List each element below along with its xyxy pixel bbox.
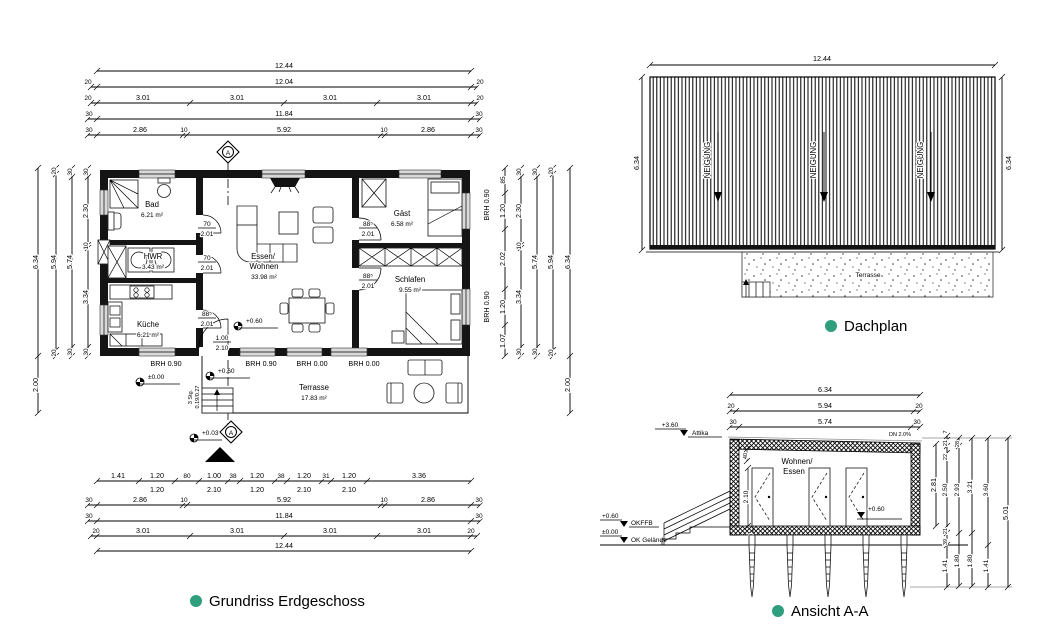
- dim-label: 3.01: [136, 93, 150, 102]
- stove-icon: [270, 178, 300, 193]
- plan-right-dimensions: 85 1.20 2.02 1.20 1.07 BRH 0.90 BRH 0.90…: [482, 165, 573, 416]
- brh-label: BRH 0.00: [348, 359, 379, 368]
- dim-label: 2.10: [297, 485, 311, 494]
- dim-label: 1.20: [150, 485, 164, 494]
- dim-label: 3.01: [230, 93, 244, 102]
- under-floor-supports: [749, 535, 907, 545]
- section-doors: [752, 468, 867, 526]
- dim-label: 20: [727, 403, 735, 410]
- roof-plan-drawing: 12.44 6.34 6.34 NEIGUNG NEIGUNG NEIGUNG …: [632, 54, 1013, 297]
- dim-label: 10: [380, 127, 388, 134]
- slope-label: NEIGUNG: [916, 142, 925, 178]
- door-w: 88⁵: [363, 221, 373, 228]
- plan-bottom-dimensions: 1.41 1.20 80 1.00 38 1.20 38 1.20 31 1.2…: [85, 471, 483, 554]
- dim-label: 1.20: [250, 485, 264, 494]
- dim-label: 2.86: [421, 495, 435, 504]
- stairs-note: 3 Stg.: [188, 389, 194, 404]
- shelf-icon: [108, 246, 126, 278]
- section-marker-icon: A: [220, 421, 242, 443]
- dim-label: 38: [229, 473, 237, 480]
- door-w: 1.00: [216, 335, 229, 342]
- level-label: +0.60: [602, 513, 619, 520]
- dim-label: 20: [476, 79, 484, 86]
- section-marker-icon: A: [217, 141, 239, 163]
- door-h: 2.01: [362, 231, 375, 238]
- dim-label: 1.20: [297, 471, 311, 480]
- sink-icon: [158, 178, 171, 198]
- room-name: Essen/: [251, 252, 276, 261]
- section-stairs: [662, 491, 730, 545]
- section-line-markers: A A: [205, 141, 242, 462]
- dim-label: 5.94: [49, 255, 58, 269]
- dim-label: 3.34: [81, 290, 90, 304]
- door-h: 2.01: [201, 231, 214, 238]
- shower-icon: [110, 180, 138, 208]
- dim-label: 12.44: [813, 54, 831, 63]
- door-h: 2.10: [216, 345, 229, 352]
- dim-label: 3.60: [983, 483, 990, 496]
- dim-label: 3.34: [514, 290, 523, 304]
- room-name: Terrasse: [299, 383, 329, 392]
- level-label: OKFFB: [631, 520, 653, 527]
- brh-label: BRH 0.90: [482, 291, 491, 322]
- door-h: 2.01: [201, 321, 214, 328]
- dim-label: 5.74: [818, 417, 832, 426]
- plan-furniture: [108, 178, 462, 346]
- level-label: +0.60: [218, 368, 235, 375]
- dim-label: 28: [955, 441, 961, 447]
- door-w: 70: [203, 221, 211, 228]
- section-marker-letter: A: [229, 430, 234, 437]
- ground-screw-piles: [749, 545, 907, 597]
- floor-slab: [730, 526, 920, 535]
- brh-label: BRH 0.90: [150, 359, 181, 368]
- dim-label: 1.41: [983, 559, 990, 572]
- dim-label: 12.44: [275, 541, 293, 550]
- terrace-label: Terrasse: [856, 272, 881, 279]
- dim-label: 30: [516, 348, 523, 356]
- level-label: ±0.00: [602, 529, 619, 536]
- dim-label: 5.74: [530, 255, 539, 269]
- dim-label: 5.92: [277, 125, 291, 134]
- dim-label: 1.07: [498, 334, 507, 348]
- section-right-dimensions: 2.81 7 21 22 2.50 21 39 1.41 28 2.93 1.8…: [910, 430, 1012, 590]
- room-area: 17.83 m²: [301, 395, 327, 402]
- dim-label: 30: [516, 168, 523, 176]
- legend-dot: [772, 605, 784, 617]
- room-name: Essen: [783, 467, 805, 476]
- dim-label: 3.01: [323, 93, 337, 102]
- legend-dot: [190, 595, 202, 607]
- floor-plan-drawing: 12.44 20 12.04 20 20 3.01 3.01 3.01 3.01…: [31, 61, 573, 554]
- dim-label: 21: [943, 528, 949, 534]
- dim-label: 7: [943, 430, 949, 433]
- dim-label: 30: [475, 513, 483, 520]
- dim-label: 80: [183, 473, 191, 480]
- dim-label: 2.86: [133, 495, 147, 504]
- room-area: 3.43 m²: [142, 264, 165, 271]
- section-drawing: 6.34 20 5.94 20 30 5.74 30 DN 2.0% Wohne…: [600, 385, 1012, 597]
- level-label: +0.03: [202, 430, 219, 437]
- door-w: 88⁵: [202, 311, 212, 318]
- drawing-title: Grundriss Erdgeschoss: [209, 593, 365, 610]
- dim-label: 5.94: [546, 255, 555, 269]
- dim-label: 39: [943, 539, 949, 545]
- dim-label: 3.01: [323, 526, 337, 535]
- level-mark-icon: [136, 378, 144, 386]
- dim-label: 20: [92, 528, 100, 535]
- dim-label: 20: [467, 528, 475, 535]
- exterior-stairs: 3 Stg. 0.19/0.27: [188, 386, 233, 413]
- dim-label: 2.30: [81, 204, 90, 218]
- dim-label: 30: [85, 111, 93, 118]
- dim-label: 1.00: [207, 471, 221, 480]
- dim-label: 2.10: [207, 485, 221, 494]
- dim-label: 2.10: [743, 490, 750, 503]
- dim-label: 11.84: [275, 109, 292, 118]
- dim-label: 20: [51, 167, 58, 175]
- dim-label: 6.34: [1004, 156, 1013, 170]
- level-label: +3.60: [662, 422, 679, 429]
- dim-label: 30: [85, 497, 93, 504]
- drawing-title: Ansicht A-A: [791, 603, 869, 620]
- dim-label: 3.01: [417, 93, 431, 102]
- door-w: 88⁵: [363, 273, 373, 280]
- dim-label: 1.20: [498, 204, 507, 218]
- dim-label: 30: [85, 127, 93, 134]
- dim-label: 40: [743, 453, 749, 459]
- drawing-title: Dachplan: [844, 318, 907, 335]
- slope-note: DN 2.0%: [889, 432, 911, 438]
- section-building: DN 2.0% Wohnen/ Essen 40 2.10 60 +0.60: [728, 432, 922, 545]
- dim-label: 10: [180, 127, 188, 134]
- dining-table-icon: [280, 289, 334, 332]
- armchair-icon: [313, 207, 333, 243]
- terrace-furniture: [387, 360, 462, 403]
- slope-label: NEIGUNG: [809, 142, 818, 178]
- dim-label: 20: [548, 167, 555, 175]
- dim-label: 2.50: [942, 483, 949, 496]
- room-name: Schlafen: [395, 275, 425, 284]
- dim-label: 6.34: [563, 255, 572, 269]
- dim-label: 5.92: [277, 495, 291, 504]
- dim-label: 20: [915, 403, 923, 410]
- dim-label: 3.01: [417, 526, 431, 535]
- dim-label: 38: [277, 473, 285, 480]
- dim-label: 1.41: [111, 471, 125, 480]
- door-w: 70: [203, 255, 211, 262]
- dim-label: 10: [516, 242, 523, 250]
- roof-terrace-steps: [742, 279, 770, 297]
- plan-left-dimensions: 30 2.30 10 3.34 30 30 5.74 30 20 5.94 20…: [31, 165, 91, 416]
- dim-label: 1.80: [954, 554, 961, 567]
- stairs-note: 0.19/0.27: [195, 386, 201, 409]
- dim-label: 2.93: [954, 483, 961, 496]
- legend-dot: [825, 320, 837, 332]
- dim-label: 20: [548, 349, 555, 357]
- door-h: 2.01: [201, 265, 214, 272]
- dim-label: 20: [84, 95, 92, 102]
- door-size-label: 70 2.01 70 2.01 88⁵ 2.01 88⁵ 2.01 88⁵ 2.…: [198, 221, 377, 352]
- dim-label: 5.94: [818, 401, 832, 410]
- dim-label: 2.81: [929, 478, 938, 492]
- brh-label: BRH 0.00: [296, 359, 327, 368]
- dim-label: 1.20: [498, 300, 507, 314]
- dim-label: 30: [83, 348, 90, 356]
- dim-label: 6.34: [632, 156, 641, 170]
- dim-label: 1.20: [150, 471, 164, 480]
- toilet-icon: [108, 212, 121, 230]
- room-area: 9.55 m²: [399, 287, 422, 294]
- level-label: +0.60: [246, 318, 263, 325]
- dim-label: 11.84: [275, 511, 292, 520]
- dim-label: 10: [180, 497, 188, 504]
- section-marker-letter: A: [226, 150, 231, 157]
- dim-label: 30: [729, 419, 737, 426]
- dim-label: 20: [84, 79, 92, 86]
- dim-label: 2.00: [31, 378, 40, 392]
- level-mark-icon: [206, 372, 214, 380]
- dim-label: 5.74: [65, 255, 74, 269]
- dim-label: 6.34: [818, 385, 832, 394]
- north-arrow-icon: [205, 447, 235, 462]
- room-name: HWR: [144, 252, 163, 261]
- dim-label: 2.30: [514, 204, 523, 218]
- dim-label: 30: [475, 497, 483, 504]
- dim-label: 30: [913, 419, 921, 426]
- dim-label: 12.44: [275, 61, 293, 70]
- dim-label: 3.21: [967, 480, 974, 493]
- dim-label: 30: [85, 513, 93, 520]
- dim-label: 1.20: [342, 471, 356, 480]
- dim-label: 1.20: [250, 471, 264, 480]
- dim-label: 3.36: [412, 471, 426, 480]
- dim-label: 2.02: [498, 252, 507, 266]
- dim-label: 30: [532, 168, 539, 176]
- plan-brh-labels: BRH 0.90 BRH 0.90 BRH 0.00 BRH 0.00: [150, 359, 379, 368]
- roof-terrace: Terrasse: [742, 252, 993, 297]
- room-name: Gäst: [394, 209, 411, 218]
- dim-label: 1.41: [942, 559, 949, 572]
- brh-label: BRH 0.90: [482, 189, 491, 220]
- dim-label: 30: [67, 348, 74, 356]
- brh-label: BRH 0.90: [245, 359, 276, 368]
- roof-slab: [730, 439, 920, 453]
- dim-label: 1.80: [967, 554, 974, 567]
- level-label: +0.60: [868, 506, 885, 513]
- dim-label: 2.86: [133, 125, 147, 134]
- dim-label: 85: [500, 176, 507, 184]
- room-area: 6.21 m²: [137, 332, 160, 339]
- wall-right: [911, 444, 920, 535]
- room-name: Bad: [145, 200, 159, 209]
- level-label: ±0.00: [148, 374, 165, 381]
- door-h: 2.01: [362, 283, 375, 290]
- room-area: 33.98 m²: [251, 274, 277, 281]
- dim-label: 12.04: [275, 77, 293, 86]
- dim-label: 20: [51, 349, 58, 357]
- room-name: Wohnen/: [781, 457, 813, 466]
- drawing-canvas: 12.44 20 12.04 20 20 3.01 3.01 3.01 3.01…: [0, 0, 1039, 636]
- dim-label: 10: [380, 497, 388, 504]
- dim-label: 21: [943, 440, 949, 446]
- dim-label: 30: [67, 168, 74, 176]
- room-area: 6.58 m²: [391, 221, 414, 228]
- terrace: Terrasse 17.83 m² 3 Stg. 0.19/0.27: [188, 356, 468, 413]
- plan-top-dimensions: 12.44 20 12.04 20 20 3.01 3.01 3.01 3.01…: [84, 61, 484, 138]
- dim-label: 30: [532, 348, 539, 356]
- coffee-table-icon: [279, 212, 298, 234]
- dim-label: 22: [943, 454, 949, 460]
- slope-label: NEIGUNG: [703, 142, 712, 178]
- roof-surface: [646, 77, 999, 252]
- dim-label: 10: [83, 242, 90, 250]
- dim-label: 2.86: [421, 125, 435, 134]
- dim-label: 2.10: [342, 485, 356, 494]
- dim-label: 31: [322, 473, 330, 480]
- dim-label: 30: [475, 127, 483, 134]
- room-name: Wohnen: [250, 262, 279, 271]
- dim-label: 2.00: [563, 378, 572, 392]
- section-top-dimensions: 6.34 20 5.94 20 30 5.74 30: [727, 385, 923, 430]
- level-mark-icon: [190, 434, 198, 442]
- level-mark-icon: [234, 322, 242, 330]
- level-label: Attika: [692, 430, 709, 437]
- dim-label: 3.01: [230, 526, 244, 535]
- dim-label: 30: [83, 168, 90, 176]
- dim-label: 30: [475, 111, 483, 118]
- wall-left: [730, 440, 739, 535]
- dim-label: 5.01: [1001, 506, 1010, 520]
- dim-label: 6.34: [31, 255, 40, 269]
- dim-label: 3.01: [136, 526, 150, 535]
- room-area: 6.21 m²: [141, 212, 164, 219]
- dim-label: 20: [476, 95, 484, 102]
- room-name: Küche: [137, 320, 159, 329]
